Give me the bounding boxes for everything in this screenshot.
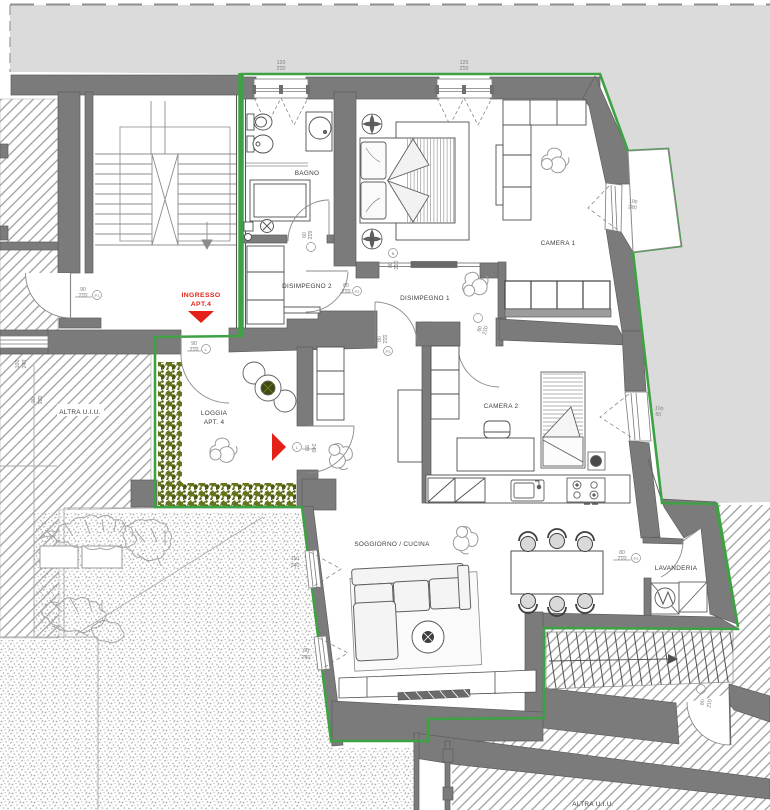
svg-text:90: 90 — [303, 445, 309, 451]
svg-text:80: 80 — [700, 699, 707, 706]
svg-text:210: 210 — [383, 335, 389, 344]
svg-text:INGRESSO: INGRESSO — [181, 292, 220, 299]
svg-text:210: 210 — [190, 347, 199, 353]
svg-text:60: 60 — [655, 412, 662, 419]
svg-text:LOGGIA: LOGGIA — [201, 410, 228, 417]
svg-text:P2: P2 — [634, 556, 640, 561]
svg-text:210: 210 — [618, 556, 627, 562]
svg-text:100: 100 — [15, 360, 21, 369]
svg-text:P1: P1 — [95, 293, 101, 298]
svg-text:CAMERA 1: CAMERA 1 — [541, 240, 576, 247]
svg-text:210: 210 — [460, 66, 469, 72]
svg-text:CAMERA 2: CAMERA 2 — [484, 403, 519, 410]
svg-text:BAGNO: BAGNO — [295, 170, 320, 177]
svg-text:240: 240 — [302, 655, 311, 661]
svg-text:240: 240 — [310, 444, 316, 453]
svg-text:210: 210 — [79, 293, 88, 299]
svg-text:DISIMPEGNO 2: DISIMPEGNO 2 — [282, 283, 332, 290]
svg-text:100: 100 — [38, 396, 44, 405]
svg-text:210: 210 — [277, 66, 286, 72]
svg-text:110: 110 — [291, 556, 299, 562]
svg-text:APT.4: APT.4 — [191, 301, 212, 308]
svg-text:ALTRA U.I.U.: ALTRA U.I.U. — [59, 409, 100, 416]
svg-text:60: 60 — [303, 648, 309, 654]
svg-text:240: 240 — [291, 563, 300, 569]
svg-text:210: 210 — [342, 289, 351, 295]
svg-text:210: 210 — [308, 231, 314, 240]
svg-text:P2: P2 — [355, 289, 361, 294]
svg-text:210: 210 — [394, 261, 400, 270]
svg-text:B: B — [392, 251, 395, 256]
svg-text:ALTRA U.I.U.: ALTRA U.I.U. — [572, 801, 613, 808]
svg-text:LAVANDERIA: LAVANDERIA — [655, 565, 698, 572]
svg-text:DISIMPEGNO 1: DISIMPEGNO 1 — [400, 295, 450, 302]
svg-text:APT. 4: APT. 4 — [204, 419, 225, 426]
svg-text:SOGGIORNO / CUCINA: SOGGIORNO / CUCINA — [354, 541, 430, 548]
svg-text:240: 240 — [22, 360, 28, 369]
svg-text:90: 90 — [31, 397, 37, 403]
svg-text:P3: P3 — [386, 349, 392, 354]
svg-text:240: 240 — [628, 204, 638, 211]
